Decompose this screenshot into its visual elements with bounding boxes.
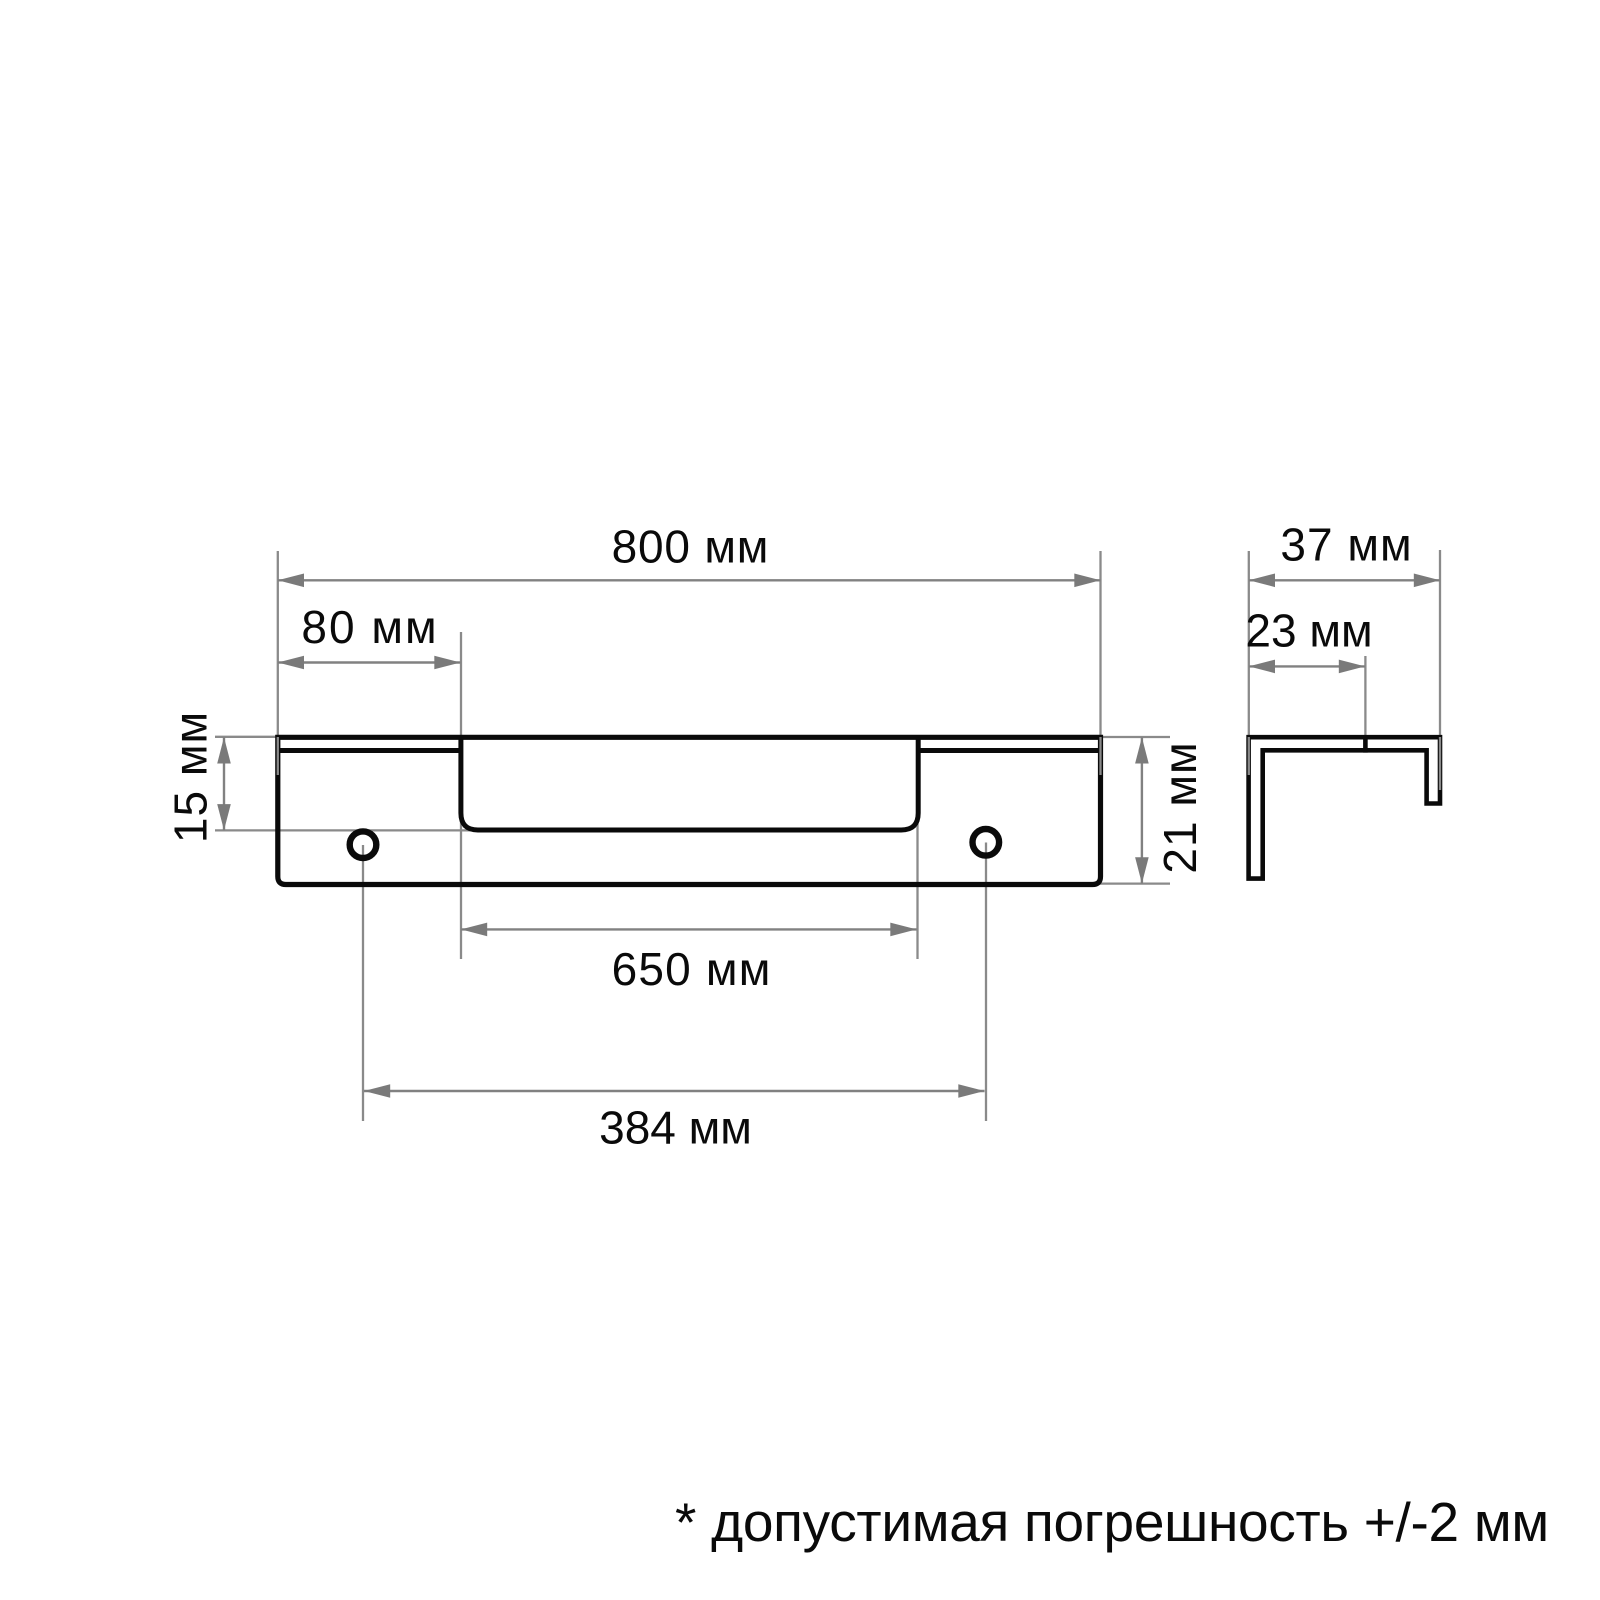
svg-text:23 мм: 23 мм (1245, 605, 1372, 657)
svg-text:* допустимая погрешность +/-2: * допустимая погрешность +/-2 мм (675, 1491, 1549, 1553)
svg-text:384 мм: 384 мм (599, 1102, 752, 1154)
svg-text:80 мм: 80 мм (301, 601, 438, 653)
svg-text:650 мм: 650 мм (612, 943, 772, 995)
svg-text:800 мм: 800 мм (612, 521, 770, 573)
svg-text:21 мм: 21 мм (1154, 741, 1206, 873)
svg-text:15 мм: 15 мм (165, 711, 217, 843)
svg-text:37 мм: 37 мм (1280, 519, 1412, 571)
